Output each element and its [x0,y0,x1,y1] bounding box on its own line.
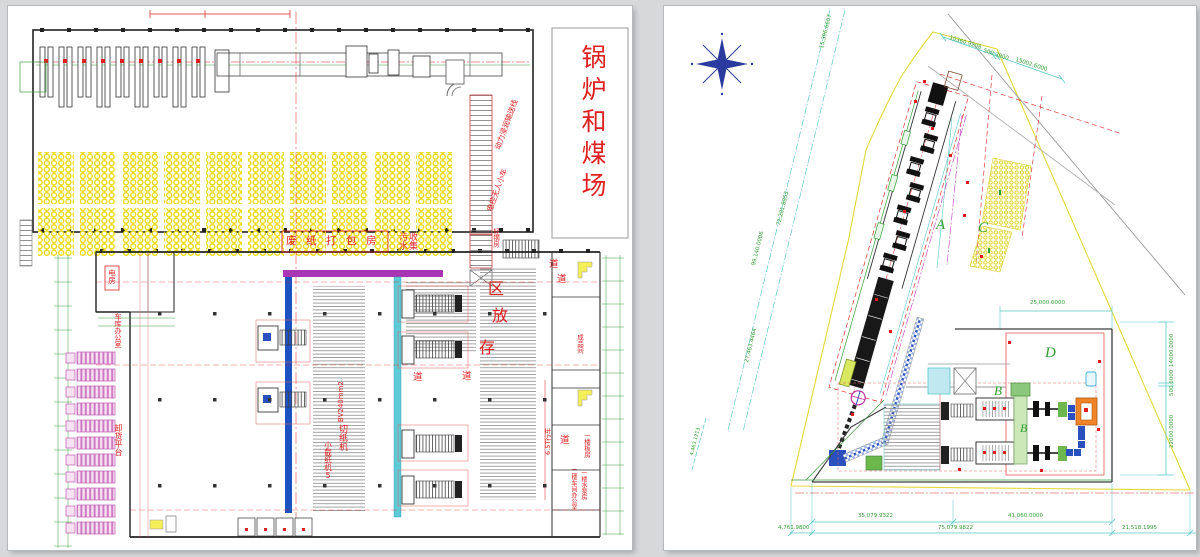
label-storage-area-char3: 区 [488,281,504,297]
label-storage-area-char2: 放 [492,308,508,324]
strip-centerlines [937,115,962,268]
label-garage-office: 车库办公室 [114,313,121,348]
cyan-conveyor-bar [394,277,401,517]
rack-fan [884,404,940,470]
label-light-steel-room: 轻钢房 [492,228,499,248]
right-drawing-sheet: A C B B D 10360.9208 500.3900 15002.6000… [664,6,1196,550]
label-aisle: 道 [462,372,472,382]
label-second-floor-office: 二楼车间办公室 [570,468,576,510]
dim-bottom-r2a: 4,761.9800 [778,526,810,532]
dim-right-v1: 14000.0000 [1170,334,1176,367]
label-ground-floor-room: 一楼板房 [583,432,590,458]
production-line-1 [941,398,1075,420]
overhead-conveyor-bar [283,270,443,277]
stair-icon [578,390,592,406]
label-area-a: A [936,218,945,233]
label-area-c: C [978,221,988,236]
left-drawing-sheet: 锅炉和煤场 废纸打包房 污水 收集 区 放 存 道 道 道 道 道 切纸机 小截… [8,6,632,550]
label-sewage-2: 收集 [407,232,416,250]
pulper-machine [1076,398,1097,425]
compass-icon [691,33,753,95]
label-aisle: 道 [413,373,423,383]
label-area-d: D [1045,346,1056,361]
label-electric-room: 电房 [108,269,116,284]
dim-right-v3: 22000.0000 [1170,415,1176,448]
label-finished-goods-room: 成品间 [576,334,583,354]
lower-building [791,329,1196,493]
label-storage-area-char1: 存 [479,340,495,356]
loading-trucks [66,352,115,534]
paper-roll-storage-blocks [38,152,452,256]
dim-bottom-r2c: 21,518.1995 [1122,526,1157,532]
label-area-b: B [994,384,1002,397]
dim-right-top: 25,000.0000 [1030,301,1065,307]
label-boiler-coal-yard: 锅炉和煤场 [580,44,605,204]
site-plan-linework [664,6,1196,550]
production-line-2 [941,426,1085,464]
label-sewage-1: 污水 [397,232,406,250]
label-cable-spec: BV240mm2 [338,381,345,422]
label-waste-paper-packing-room: 废纸打包房 [286,236,386,247]
label-area-b-italic: B [1020,422,1027,434]
storage-rack [480,268,536,500]
floor-plan-linework [8,6,632,550]
yellow-storage-patches [970,158,1031,272]
label-unloading-platform: 卸货平台 [114,424,122,456]
label-small-paper-cutter: 小截纸机5 [324,441,332,480]
label-aisle: 道 [557,275,567,285]
area-c-red-boundary [940,74,1122,265]
dim-bottom-r1b: 41,060.0000 [1008,514,1043,520]
road-lines [928,14,1185,295]
label-aisle: 道 [549,260,559,270]
machine-row [40,47,229,107]
dim-bottom-r2b: 75,079.9822 [938,526,973,532]
dim-bottom-r1a: 35,079.9322 [858,514,893,520]
toilet-stalls [238,518,312,536]
stair-icon [578,262,592,278]
label-pump-room: 一楼水泵房 [580,470,586,500]
dim-right-v2: 500.6000 [1170,370,1176,396]
label-paper-cutter: 切纸机 [337,424,346,451]
label-crane: 6.5T行车 [545,428,552,455]
label-aisle: 道 [560,436,570,446]
